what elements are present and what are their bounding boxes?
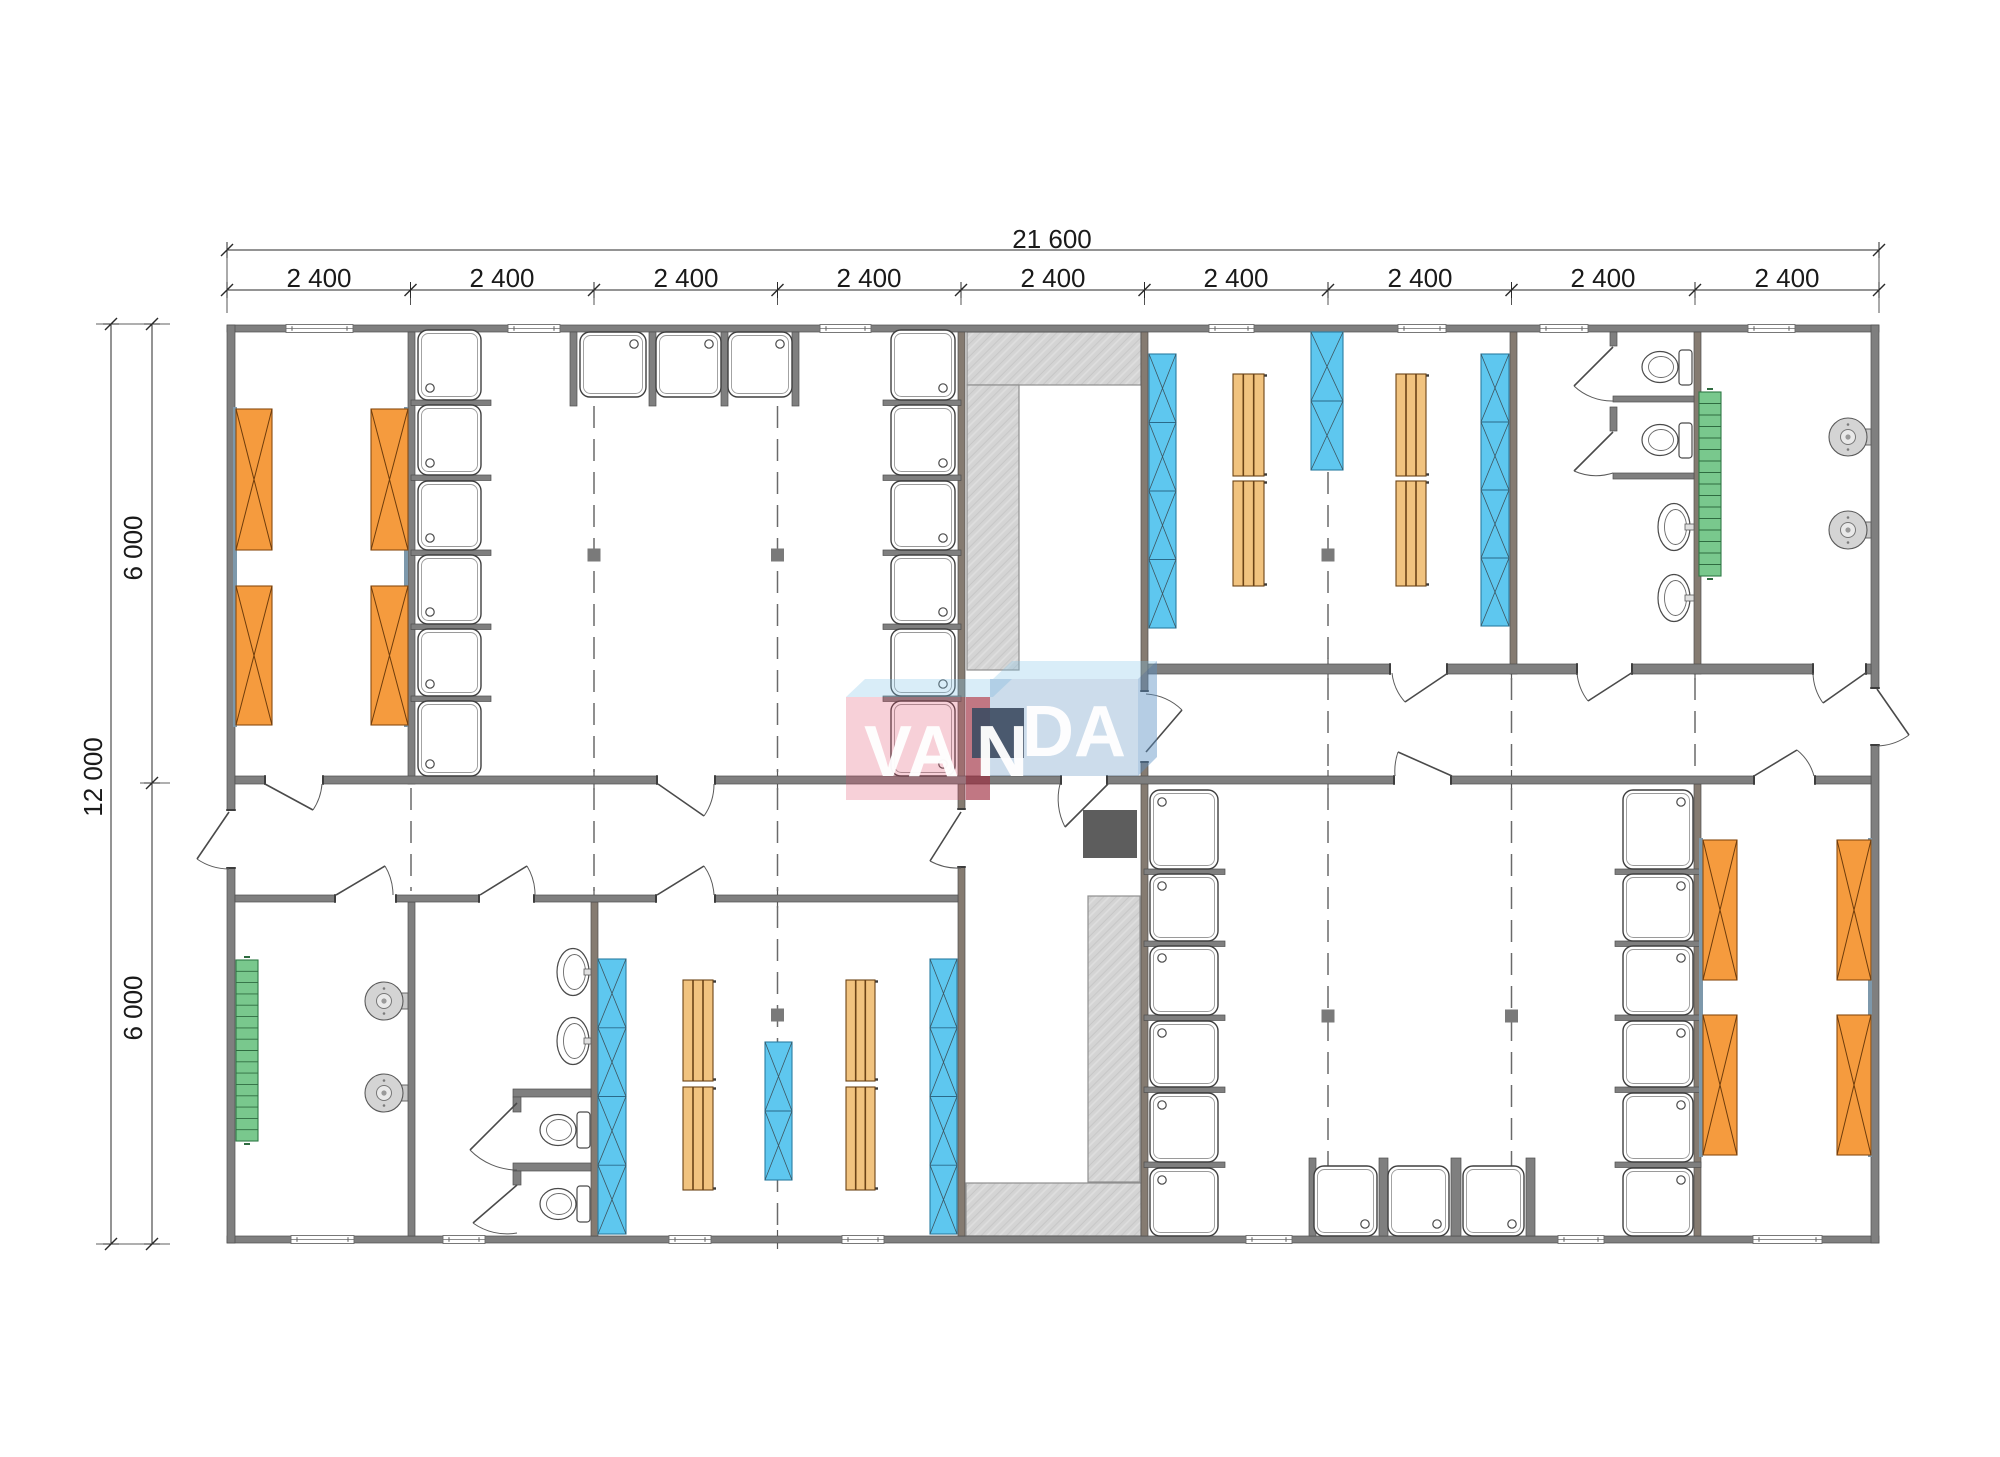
svg-text:2 400: 2 400 (1570, 263, 1635, 293)
svg-text:VA: VA (864, 712, 960, 792)
svg-text:2 400: 2 400 (1203, 263, 1268, 293)
svg-text:6 000: 6 000 (118, 975, 148, 1040)
svg-text:21 600: 21 600 (1012, 224, 1092, 254)
svg-text:6 000: 6 000 (118, 515, 148, 580)
svg-text:2 400: 2 400 (1020, 263, 1085, 293)
svg-text:12 000: 12 000 (78, 737, 108, 817)
svg-text:2 400: 2 400 (653, 263, 718, 293)
svg-text:2 400: 2 400 (1387, 263, 1452, 293)
svg-text:N: N (976, 712, 1028, 792)
svg-text:2 400: 2 400 (1754, 263, 1819, 293)
svg-text:2 400: 2 400 (286, 263, 351, 293)
svg-text:2 400: 2 400 (469, 263, 534, 293)
svg-text:DA: DA (1022, 692, 1126, 772)
svg-text:2 400: 2 400 (836, 263, 901, 293)
